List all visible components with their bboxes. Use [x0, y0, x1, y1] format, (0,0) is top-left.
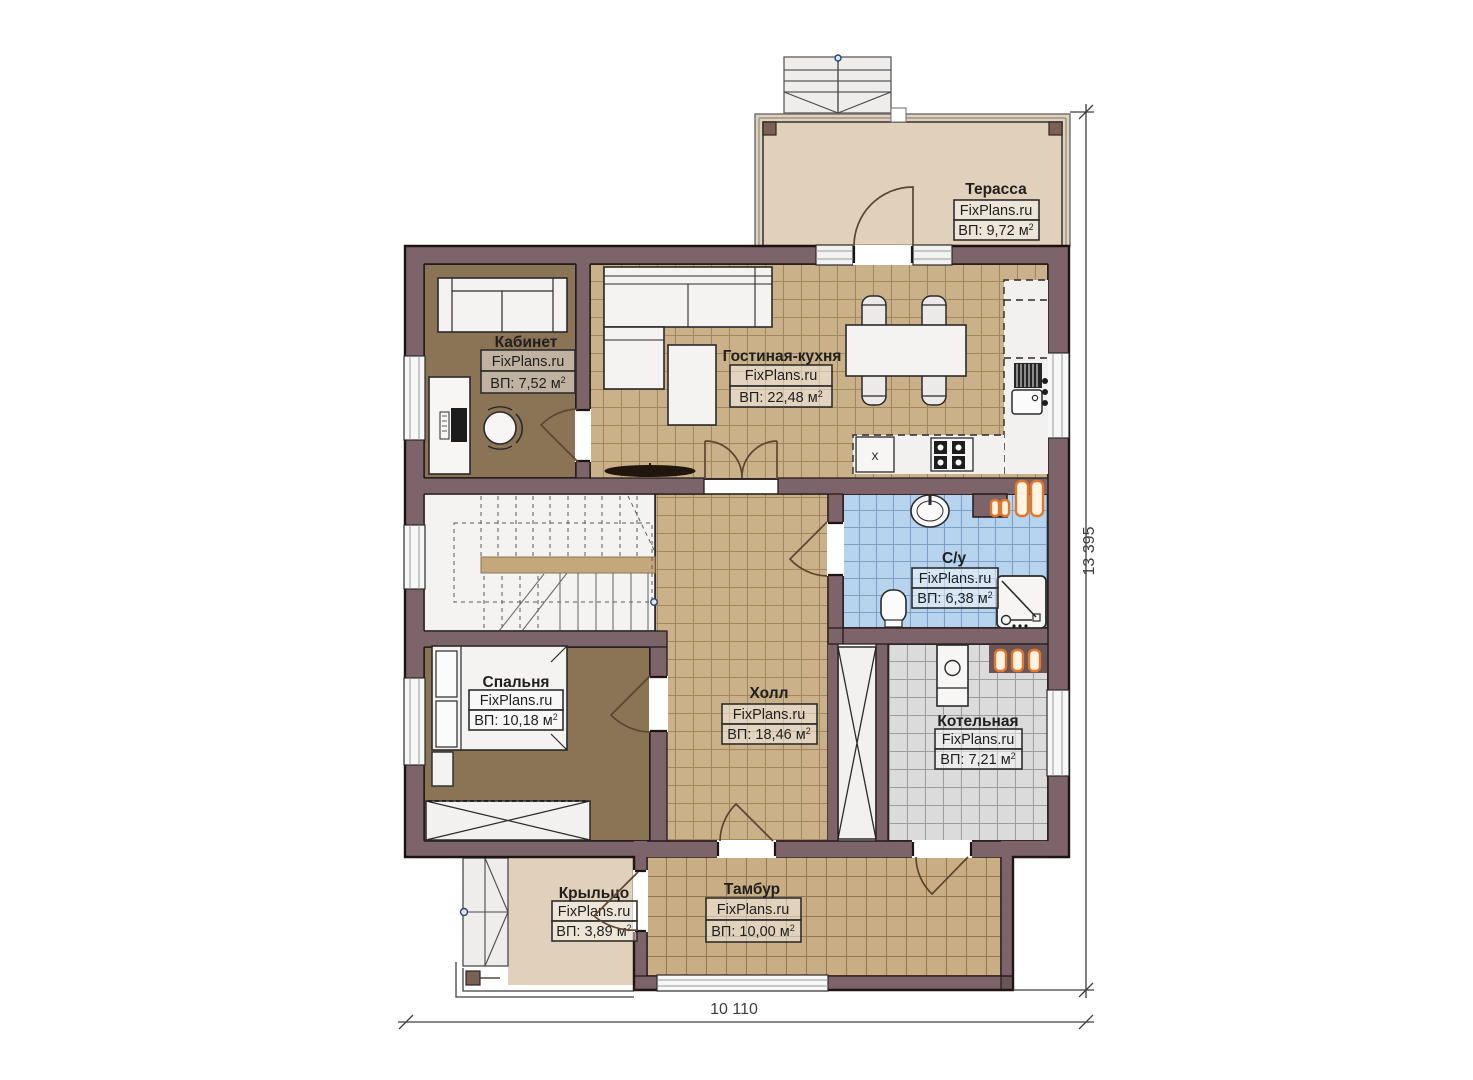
svg-text:ВП: 3,89 м2: ВП: 3,89 м2: [556, 923, 631, 940]
svg-text:FixPlans.ru: FixPlans.ru: [733, 707, 806, 723]
svg-text:Котельная: Котельная: [937, 713, 1018, 730]
svg-text:10 110: 10 110: [710, 1001, 758, 1018]
svg-text:Холл: Холл: [750, 685, 789, 702]
svg-text:FixPlans.ru: FixPlans.ru: [492, 354, 565, 370]
svg-text:x: x: [872, 447, 879, 463]
svg-text:ВП: 7,21 м2: ВП: 7,21 м2: [940, 751, 1015, 768]
svg-text:13 395: 13 395: [1081, 526, 1098, 575]
svg-text:FixPlans.ru: FixPlans.ru: [717, 902, 790, 918]
svg-text:Тамбур: Тамбур: [724, 881, 780, 898]
svg-text:Терасса: Терасса: [965, 181, 1027, 198]
svg-text:FixPlans.ru: FixPlans.ru: [480, 693, 553, 709]
svg-text:ВП: 9,72 м2: ВП: 9,72 м2: [958, 222, 1033, 239]
svg-text:Спальня: Спальня: [483, 674, 550, 691]
svg-text:Кабинет: Кабинет: [495, 334, 558, 351]
svg-text:FixPlans.ru: FixPlans.ru: [960, 203, 1033, 219]
svg-text:FixPlans.ru: FixPlans.ru: [745, 368, 818, 384]
svg-text:Гостиная-кухня: Гостиная-кухня: [723, 348, 842, 365]
svg-text:ВП: 6,38 м2: ВП: 6,38 м2: [917, 590, 992, 607]
svg-text:FixPlans.ru: FixPlans.ru: [919, 571, 992, 587]
svg-text:FixPlans.ru: FixPlans.ru: [558, 904, 631, 920]
svg-text:ВП: 22,48 м2: ВП: 22,48 м2: [739, 389, 822, 406]
svg-text:FixPlans.ru: FixPlans.ru: [942, 732, 1015, 748]
svg-text:ВП: 10,00 м2: ВП: 10,00 м2: [711, 923, 794, 940]
svg-text:С/у: С/у: [942, 550, 967, 567]
svg-text:Крыльцо: Крыльцо: [559, 885, 630, 902]
svg-text:ВП: 7,52 м2: ВП: 7,52 м2: [490, 375, 565, 392]
svg-text:ВП: 10,18 м2: ВП: 10,18 м2: [474, 712, 557, 729]
svg-text:ВП: 18,46 м2: ВП: 18,46 м2: [727, 726, 810, 743]
